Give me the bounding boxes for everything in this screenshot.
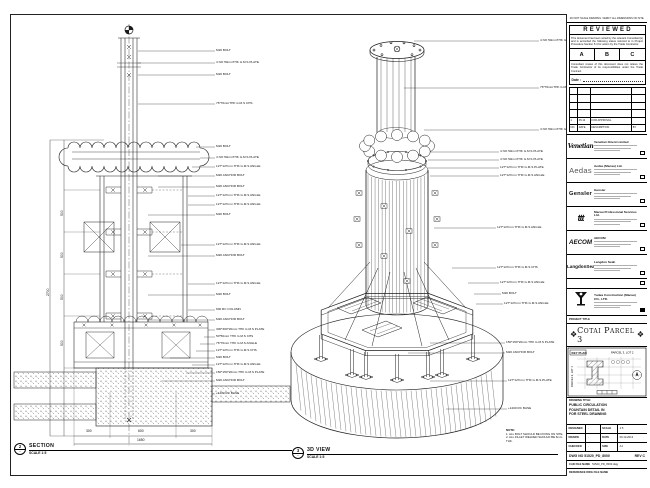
- 3d-marker-number: 3: [293, 448, 303, 454]
- annotation-label: M20 BOLT: [216, 73, 231, 76]
- gensler-logo: Gensler: [567, 191, 594, 197]
- revision-cell: [632, 110, 645, 116]
- approval-table: DESIGNED-SCALE1:5DRAWN-DATE09.10.2013CHE…: [567, 425, 647, 452]
- title-block: DO NOT SCALE DRAWING. VERIFY ALL DIMENSI…: [566, 14, 647, 476]
- dimension-label: 500: [61, 210, 64, 216]
- drawing-sheet: M20 BOLT4 NO 50mmTHK G.M.S PLATEM20 BOLT…: [0, 0, 650, 488]
- note-line: 2. ALL FILLET WELDED SHOULD BE 6mm THK.: [506, 436, 564, 443]
- annotation-label: 76*76mm THK G.M.S ANGLE: [216, 342, 257, 345]
- annotation-label: 127*127mm THK G.M.S ANGLE: [216, 165, 260, 168]
- project-title: Cotai Parcel 3: [577, 326, 637, 344]
- annotation-label: 127*127mm THK G.M.S ANGLE: [504, 302, 548, 305]
- annotation-label: 127*127mm THK G.M.S PLATE: [500, 166, 544, 169]
- revision-row: [570, 102, 645, 109]
- consultant-name: Venetian Orient Limited: [594, 141, 641, 145]
- checkbox-icon: [640, 151, 644, 155]
- revision-cell: 1: [570, 118, 578, 124]
- reviewed-status-options: A B C: [570, 49, 645, 61]
- annotation-label: M20 BOLT: [216, 145, 231, 148]
- checkbox-icon: [640, 199, 644, 203]
- status-option-b: B: [595, 49, 620, 60]
- annotation-label: 127*127mm THK G.M.S ANGLE: [497, 226, 541, 229]
- approval-cell: DATE: [601, 434, 619, 442]
- cad-file-row: CAD FILE NAME 51520_PD_8000.dwg: [567, 461, 647, 469]
- revision-cell: [632, 95, 645, 101]
- approval-cell: 1:5: [618, 425, 647, 433]
- consultant-name: Macau Professional Services Ltd.: [594, 211, 641, 218]
- approval-cell: SIZE: [601, 443, 619, 451]
- venetian-logo: Venetian: [567, 143, 594, 150]
- section-title: SECTION: [29, 443, 292, 449]
- annotation-label: M20 ANCHOR BOLT: [216, 254, 245, 257]
- empty-consultant-row: [567, 279, 647, 289]
- revision-cell: [570, 110, 578, 116]
- approval-cell: DESIGNED: [567, 425, 586, 433]
- revision-cell: [570, 95, 578, 101]
- general-notes: NOTE: 1. ALL BOLT SHOULD BE FIXING ON SI…: [506, 429, 564, 443]
- annotation-label: 127*127mm THK G.M.S ANGLE: [216, 243, 260, 246]
- revision-cell: [591, 95, 632, 101]
- 3d-scale: SCALE 1:5: [307, 455, 558, 459]
- reference-label: REFERENCE DWG FILE NAME: [569, 471, 608, 474]
- revision-table: 105.13FOR APPROVALNO.DATEDESCRIPTIONBY: [569, 87, 646, 132]
- revision-cell: DATE: [578, 125, 591, 131]
- dimension-label: 600: [138, 430, 144, 433]
- annotation-label: 4 NO 50mmTHK G.M.S PLATE: [216, 61, 259, 64]
- section-scale: SCALE 1:5: [29, 451, 292, 455]
- dwg-number-row: DWG NO 51520_PD_8000 REV C: [567, 452, 647, 462]
- cad-file-value: 51520_PD_8000.dwg: [592, 463, 618, 466]
- dimension-label: 300: [190, 430, 196, 433]
- revision-cell: [578, 95, 591, 101]
- approval-cell: -: [586, 434, 600, 442]
- checkbox-icon: [640, 281, 644, 285]
- title-block-top-note: DO NOT SCALE DRAWING. VERIFY ALL DIMENSI…: [567, 14, 647, 23]
- rev-value: C: [643, 454, 645, 458]
- consultant-row: AECOMAECOM: [567, 231, 647, 255]
- annotation-label: +1200 RC BASE: [508, 407, 531, 410]
- revision-cell: [591, 103, 632, 109]
- annotation-label: M20 ANCHOR BOLT: [216, 174, 245, 177]
- annotation-label: 127*127mm THK G.M.S ANGLE: [216, 194, 260, 197]
- address-lines: [594, 241, 641, 246]
- key-plan-building: [587, 361, 603, 385]
- annotation-label: 4 NO 50mmTHK G.M.S PLATE: [216, 156, 259, 159]
- annotation-label: +1200 RC BASE: [216, 392, 239, 395]
- key-plan-label: KEY PLAN: [572, 350, 587, 354]
- checkbox-icon: [640, 175, 644, 179]
- approval-cell: CHECKED: [567, 443, 586, 451]
- annotation-label: 76*76mmTHK G.M.S CHS: [216, 102, 252, 105]
- section-marker-bubble: 2 -: [14, 443, 26, 455]
- dimension-label: 500: [61, 252, 64, 258]
- dimension-label: 500: [61, 294, 64, 300]
- annotation-label: M20 ANCHOR BOLT: [216, 379, 245, 382]
- address-lines: [594, 193, 641, 198]
- revision-cell: [632, 103, 645, 109]
- annotation-label: M20 BOLT: [216, 213, 231, 216]
- revision-cell: [578, 110, 591, 116]
- annotation-label: M20 BOLT: [216, 356, 231, 359]
- annotation-label: 127*127mm THK G.M.S PLATE: [508, 379, 552, 382]
- consultant-name: AECOM: [594, 237, 641, 241]
- key-plan: KEY PLAN PARCEL 3, LOT 2 PARCEL 3, LOT 1: [567, 347, 647, 398]
- annotation-layer: M20 BOLT4 NO 50mmTHK G.M.S PLATEM20 BOLT…: [0, 0, 650, 488]
- revision-cell: [570, 88, 578, 94]
- address-lines: [594, 219, 641, 224]
- revision-cell: [591, 88, 632, 94]
- 3d-marker-bubble: 3 -: [292, 447, 304, 459]
- annotation-label: 127*127mm THK G.M.S ANGLE: [216, 363, 260, 366]
- approval-cell: DRAWN: [567, 434, 586, 442]
- contractor-address-lines: [594, 302, 641, 307]
- langdon-logo: LangdonSeah: [567, 264, 594, 269]
- drawing-title-box: DRAWING TITLE: PUBLIC CIRCULATION FOUNTA…: [567, 398, 647, 425]
- annotation-label: M20 ANCHOR BOLT: [216, 318, 245, 321]
- approval-row: DESIGNED-SCALE1:5: [567, 425, 647, 434]
- reviewed-footer: Consultant review of this document does …: [570, 61, 645, 75]
- section-marker-number: 2: [15, 444, 25, 450]
- annotation-label: 4 NO 50mmTHK G.M.S PLATE: [500, 158, 543, 161]
- annotation-label: 127*127mm THK G.M.S ANGLE: [216, 282, 260, 285]
- key-plan-lot-left: PARCEL 3, LOT 1: [570, 365, 574, 386]
- address-lines: [594, 145, 641, 150]
- aecom-logo: AECOM: [567, 239, 594, 246]
- reviewed-date-row: Date :: [570, 75, 645, 84]
- consultant-row: LangdonSeahLangdon Seah: [567, 255, 647, 279]
- revision-cell: BY: [632, 125, 645, 131]
- consultant-row: AedasAedas (Macau) Ltd.: [567, 159, 647, 183]
- address-lines: [594, 169, 641, 174]
- 3d-marker-sheet: -: [293, 453, 303, 459]
- dimension-label: 2700: [47, 288, 50, 296]
- annotation-label: M20 BOLT: [216, 293, 231, 296]
- revision-row: [570, 94, 645, 101]
- contractor-name: Yudea Construction (Macau) CO., LTD.: [594, 294, 641, 301]
- approval-cell: SCALE: [601, 425, 619, 433]
- revision-cell: DESCRIPTION: [591, 125, 632, 131]
- revision-cell: [578, 88, 591, 94]
- ornament-icon: ❖: [637, 331, 644, 339]
- annotation-label: 300*300*20mm THK G.M.S PLATE: [216, 328, 264, 331]
- revision-row: NO.DATEDESCRIPTIONBY: [570, 124, 645, 131]
- drawing-title-line: FOR STEEL DRAWING: [569, 412, 645, 417]
- dimension-label: 500: [61, 340, 64, 346]
- section-view-label: 2 - SECTION SCALE 1:5: [14, 443, 292, 455]
- address-lines: [594, 265, 641, 270]
- consultant-list: VenetianVenetian Orient LimitedAedasAeda…: [567, 134, 647, 279]
- aedas-logo: Aedas: [567, 166, 594, 175]
- annotation-label: 150*150*20mm THK G.M.S PLATE: [506, 341, 554, 344]
- dimension-label: 1650: [137, 439, 145, 442]
- contractor-row: Yudea Construction (Macau) CO., LTD.: [567, 289, 647, 316]
- checkbox-icon: [640, 308, 644, 312]
- annotation-label: M20 BOLT: [216, 49, 231, 52]
- rev-label: REV: [635, 454, 642, 458]
- checkbox-icon: [640, 247, 644, 251]
- revision-cell: [570, 103, 578, 109]
- annotation-label: M20 ANCHOR BOLT: [216, 185, 245, 188]
- revision-cell: [578, 103, 591, 109]
- annotation-label: 50*50mm THK G.M.S CHS: [216, 335, 253, 338]
- status-option-c: C: [620, 49, 644, 60]
- approval-cell: -: [586, 443, 600, 451]
- project-title-label: PROJECT TITLE: [567, 316, 647, 324]
- annotation-label: 127*127mm THK G.M.S CHS: [497, 266, 538, 269]
- reviewed-title: REVIEWED: [570, 26, 645, 36]
- annotation-label: 127*127mm THK G.M.S CHS: [216, 349, 257, 352]
- reference-dwg-row: REFERENCE DWG FILE NAME: [567, 469, 647, 476]
- date-fill-line: [583, 77, 643, 82]
- checkbox-icon: [640, 271, 644, 275]
- consultant-row: tttMacau Professional Services Ltd.: [567, 207, 647, 231]
- dwg-no-label: DWG NO: [569, 454, 583, 458]
- date-label: Date :: [572, 78, 581, 82]
- revision-row: 105.13FOR APPROVAL: [570, 117, 645, 124]
- approval-cell: -: [586, 425, 600, 433]
- consultant-row: VenetianVenetian Orient Limited: [567, 135, 647, 159]
- revision-cell: [632, 88, 645, 94]
- drawing-title-label: DRAWING TITLE:: [569, 399, 645, 402]
- reviewed-body: This document has been noted by the rele…: [570, 35, 645, 49]
- checkbox-icon: [640, 223, 644, 227]
- approval-row: DRAWN-DATE09.10.2013: [567, 434, 647, 443]
- dimension-label: 300: [86, 430, 92, 433]
- annotation-label: 150*150*20mm THK G.M.S PLATE: [216, 371, 264, 374]
- annotation-label: 127*127mm THK G.M.S ANGLE: [500, 281, 544, 284]
- revision-row: [570, 109, 645, 116]
- status-option-a: A: [570, 49, 595, 60]
- 3d-title: 3D VIEW: [307, 447, 558, 453]
- project-title-banner: ❖ Cotai Parcel 3 ❖: [567, 324, 647, 347]
- key-plan-map: KEY PLAN PARCEL 3, LOT 2 PARCEL 3, LOT 1: [567, 347, 647, 397]
- revision-cell: FOR APPROVAL: [591, 118, 632, 124]
- reviewed-stamp: REVIEWED This document has been noted by…: [569, 25, 646, 86]
- contractor-logo: [567, 291, 594, 312]
- consultant-name: Langdon Seah: [594, 261, 641, 265]
- revision-row: [570, 88, 645, 94]
- martini-glass-icon: [574, 291, 588, 307]
- annotation-label: M20 ANCHOR BOLT: [506, 351, 535, 354]
- revision-cell: [591, 110, 632, 116]
- annotation-label: 4 NO 50mmTHK G.M.S PLATE: [500, 150, 543, 153]
- ornament-icon: ❖: [570, 331, 577, 339]
- revision-cell: NO.: [570, 125, 578, 131]
- consultant-name: Gensler: [594, 189, 641, 193]
- revision-cell: 05.13: [578, 118, 591, 124]
- approval-cell: 09.10.2013: [618, 434, 647, 442]
- annotation-label: 127*127mm THK G.M.S ANGLE: [500, 174, 544, 177]
- mps-logo: ttt: [567, 213, 594, 223]
- key-plan-lot-right: PARCEL 3, LOT 2: [611, 350, 634, 354]
- annotation-label: M20 BOLT: [502, 292, 517, 295]
- revision-cell: [632, 118, 645, 124]
- consultant-name: Aedas (Macau) Ltd.: [594, 165, 641, 169]
- 3d-view-label: 3 - 3D VIEW SCALE 1:5: [292, 447, 558, 459]
- annotation-label: 600 RC COLUMN: [216, 308, 241, 311]
- section-marker-sheet: -: [15, 449, 25, 455]
- annotation-label: 127*127mm THK G.M.S ANGLE: [216, 203, 260, 206]
- approval-cell: A1: [618, 443, 647, 451]
- dwg-number: 51520_PD_8000: [584, 454, 609, 458]
- consultant-row: GenslerGensler: [567, 183, 647, 207]
- cad-file-label: CAD FILE NAME: [569, 463, 590, 466]
- approval-row: CHECKED-SIZEA1: [567, 443, 647, 452]
